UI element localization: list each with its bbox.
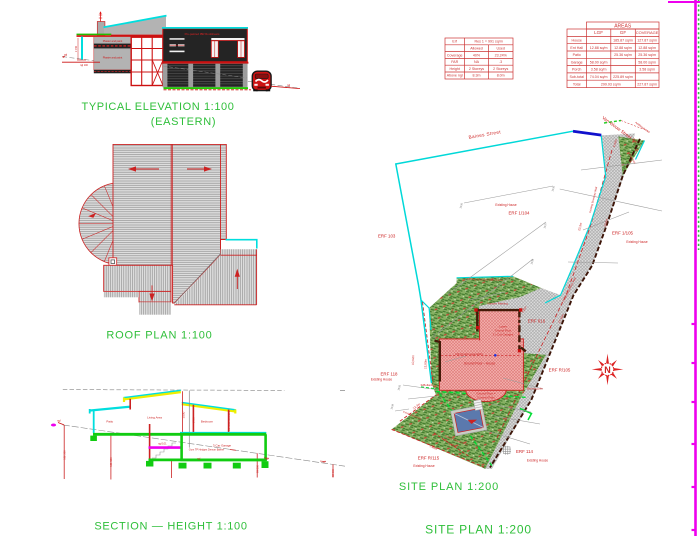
svg-text:13,80m: 13,80m bbox=[423, 358, 427, 369]
svg-text:3.58 sq/m: 3.58 sq/m bbox=[639, 68, 655, 72]
svg-text:Height: Height bbox=[450, 67, 460, 71]
svg-text:1535: 1535 bbox=[396, 384, 402, 391]
svg-text:Existing House: Existing House bbox=[495, 203, 516, 207]
svg-text:ROOF PLAN 1:100: ROOF PLAN 1:100 bbox=[106, 330, 212, 342]
svg-text:Blocking pile: Blocking pile bbox=[527, 387, 543, 391]
svg-text:Coverage: Coverage bbox=[447, 53, 463, 57]
svg-text:Patio: Patio bbox=[106, 420, 113, 424]
svg-text:ERF 1/105: ERF 1/105 bbox=[612, 231, 634, 236]
svg-text:2700: 2700 bbox=[192, 417, 196, 423]
svg-text:RC COL 300x300: RC COL 300x300 bbox=[227, 410, 231, 431]
svg-text:40%: 40% bbox=[473, 53, 481, 57]
svg-text:23.24%: 23.24% bbox=[495, 53, 508, 57]
svg-text:8.3m: 8.3m bbox=[473, 74, 481, 78]
svg-text:74.04 sq/m: 74.04 sq/m bbox=[590, 75, 608, 79]
svg-text:SITE PLAN 1:200: SITE PLAN 1:200 bbox=[399, 481, 499, 493]
svg-text:Plaster and paint: Plaster and paint bbox=[103, 56, 123, 60]
svg-text:Existing House: Existing House bbox=[371, 378, 392, 382]
svg-text:3xBollards: 3xBollards bbox=[420, 383, 434, 387]
svg-text:Sub-total: Sub-total bbox=[570, 75, 585, 79]
svg-text:COVERAGE: COVERAGE bbox=[636, 30, 659, 35]
svg-text:12.88 sq/m: 12.88 sq/m bbox=[638, 46, 656, 50]
svg-text:1437: 1437 bbox=[542, 222, 548, 229]
svg-text:NA: NA bbox=[474, 60, 480, 64]
svg-text:.3: .3 bbox=[499, 60, 502, 64]
svg-text:Bedroom: Bedroom bbox=[201, 420, 214, 424]
svg-text:Living Area: Living Area bbox=[147, 416, 162, 420]
svg-text:ngl: ngl bbox=[287, 84, 291, 87]
svg-text:ERF R/115: ERF R/115 bbox=[418, 455, 440, 460]
svg-text:225.89 sq/m: 225.89 sq/m bbox=[613, 75, 633, 79]
svg-text:N: N bbox=[604, 365, 611, 375]
svg-text:ERF R/105: ERF R/105 bbox=[549, 368, 571, 373]
svg-text:ngl: ngl bbox=[197, 458, 201, 461]
svg-text:ngl 100: ngl 100 bbox=[80, 64, 89, 67]
svg-text:58.00 sq/m: 58.00 sq/m bbox=[590, 60, 608, 64]
svg-text:Total: Total bbox=[573, 82, 581, 86]
svg-text:58.00 sq/m: 58.00 sq/m bbox=[638, 60, 656, 64]
svg-text:Ent Hall: Ent Hall bbox=[570, 46, 583, 50]
svg-text:ERF 1/104: ERF 1/104 bbox=[509, 211, 531, 216]
svg-text:SITE PLAN 1:200: SITE PLAN 1:200 bbox=[425, 523, 532, 536]
svg-text:SECTION — HEIGHT 1:100: SECTION — HEIGHT 1:100 bbox=[94, 521, 247, 533]
svg-text:Erf: Erf bbox=[452, 40, 457, 44]
svg-text:Gum TP Hedges Demon Barrier: Gum TP Hedges Demon Barrier bbox=[189, 449, 225, 452]
svg-text:2 700: 2 700 bbox=[75, 45, 78, 52]
svg-text:AREAS: AREAS bbox=[614, 23, 632, 29]
svg-text:227.87 sq/m: 227.87 sq/m bbox=[637, 82, 657, 86]
svg-text:(EASTERN): (EASTERN) bbox=[151, 116, 217, 128]
svg-text:Pre-painted IBR Roofsheets: Pre-painted IBR Roofsheets bbox=[185, 32, 220, 36]
svg-text:Additional road: Additional road bbox=[634, 120, 651, 134]
svg-text:Visitors Parking: Visitors Parking bbox=[487, 302, 508, 306]
svg-text:Infill of height-respectabilit: Infill of height-respectability bbox=[455, 353, 484, 356]
svg-text:ERF 118: ERF 118 bbox=[380, 371, 398, 376]
svg-text:Plaster and paint: Plaster and paint bbox=[103, 39, 123, 43]
svg-text:1438: 1438 bbox=[389, 403, 395, 410]
svg-text:3 Car Garage: 3 Car Garage bbox=[213, 443, 232, 447]
svg-text:LGF: LGF bbox=[594, 30, 603, 35]
svg-text:12.88 sq/m: 12.88 sq/m bbox=[614, 46, 632, 50]
svg-text:ngl: ngl bbox=[57, 419, 61, 423]
svg-text:2 Storeys: 2 Storeys bbox=[493, 67, 508, 71]
svg-text:Existing House: Existing House bbox=[527, 459, 548, 463]
svg-text:98 900: 98 900 bbox=[331, 468, 335, 476]
svg-text:Patio: Patio bbox=[573, 53, 581, 57]
svg-text:8.0m: 8.0m bbox=[497, 74, 505, 78]
svg-text:Existing House: Existing House bbox=[413, 464, 434, 468]
svg-text:1430: 1430 bbox=[550, 185, 556, 192]
svg-text:2 Storeys: 2 Storeys bbox=[469, 67, 484, 71]
svg-text:3 x Car Garages: 3 x Car Garages bbox=[493, 333, 514, 337]
svg-text:185.87 sq/m: 185.87 sq/m bbox=[613, 39, 633, 43]
svg-text:Existing House: Existing House bbox=[626, 240, 647, 244]
svg-text:3.58 sq/m: 3.58 sq/m bbox=[591, 68, 607, 72]
svg-text:101 300: 101 300 bbox=[109, 457, 113, 467]
svg-text:Ground Floor – House: Ground Floor – House bbox=[464, 362, 496, 366]
svg-text:Used: Used bbox=[497, 47, 505, 51]
svg-text:Covered Patio: Covered Patio bbox=[477, 396, 495, 400]
svg-text:25.36 sq/m: 25.36 sq/m bbox=[614, 53, 632, 57]
svg-text:10,92m: 10,92m bbox=[411, 354, 415, 365]
svg-text:22,3m: 22,3m bbox=[577, 222, 583, 232]
svg-text:102 500: 102 500 bbox=[62, 450, 66, 460]
svg-text:12.88 sq/m: 12.88 sq/m bbox=[590, 46, 608, 50]
svg-text:Garage: Garage bbox=[571, 60, 583, 64]
svg-text:ERF 114: ERF 114 bbox=[516, 449, 534, 454]
svg-text:Above ngl: Above ngl bbox=[447, 74, 463, 78]
svg-text:Baines Street: Baines Street bbox=[468, 129, 501, 140]
svg-text:House: House bbox=[572, 39, 582, 43]
svg-text:1430: 1430 bbox=[458, 202, 464, 209]
svg-text:FAR: FAR bbox=[451, 60, 458, 64]
svg-text:25.36 sq/m: 25.36 sq/m bbox=[638, 53, 656, 57]
svg-text:ERF 616: ERF 616 bbox=[528, 319, 546, 324]
svg-text:ERF 103: ERF 103 bbox=[378, 234, 396, 239]
svg-text:Porch: Porch bbox=[572, 68, 581, 72]
svg-text:GF: GF bbox=[620, 30, 627, 35]
svg-text:Allowed: Allowed bbox=[470, 47, 483, 51]
svg-text:127.87 sq/m: 127.87 sq/m bbox=[637, 39, 657, 43]
svg-text:299.93 sq/m: 299.93 sq/m bbox=[601, 82, 621, 86]
svg-text:3500: 3500 bbox=[182, 411, 186, 418]
svg-text:ngl: ngl bbox=[64, 54, 68, 57]
svg-text:Res 1 = 991 sq/m: Res 1 = 991 sq/m bbox=[475, 40, 503, 44]
svg-text:99 800: 99 800 bbox=[255, 464, 259, 472]
svg-text:1435: 1435 bbox=[529, 258, 535, 265]
svg-text:TYPICAL ELEVATION 1:100: TYPICAL ELEVATION 1:100 bbox=[82, 101, 235, 113]
svg-text:ngl 101: ngl 101 bbox=[158, 442, 167, 446]
